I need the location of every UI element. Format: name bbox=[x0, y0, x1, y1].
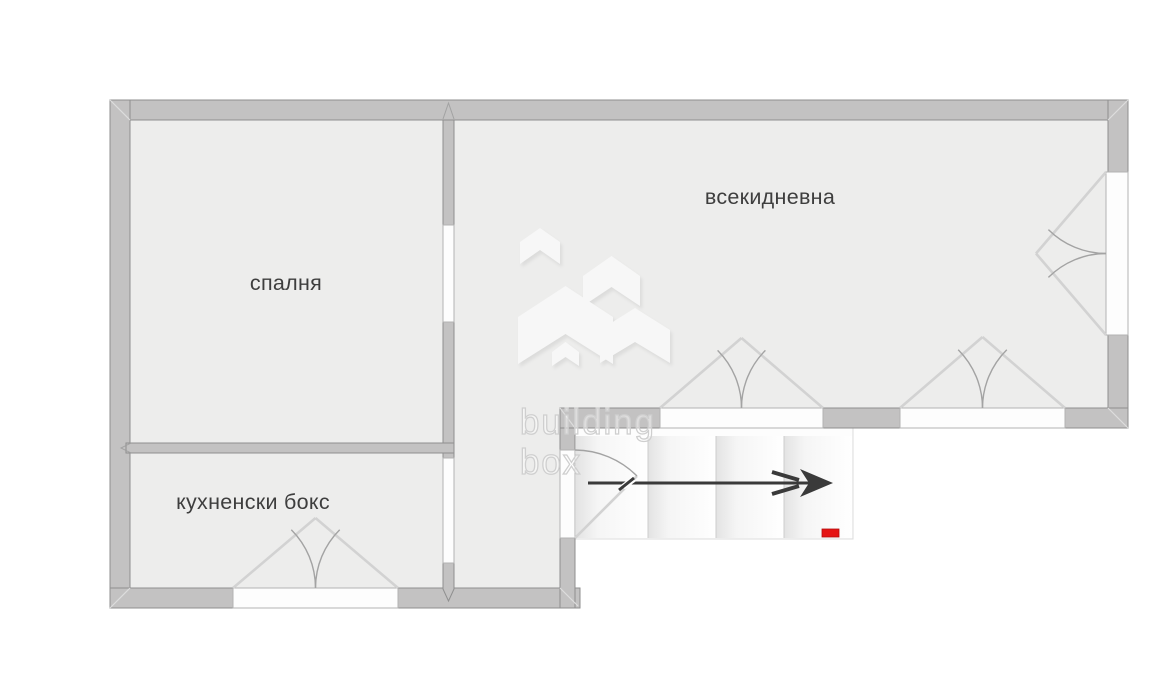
wall-interior-vertical-upper bbox=[443, 120, 454, 225]
floor-plan-drawing bbox=[0, 0, 1170, 697]
opening-kitchen-hallway bbox=[443, 458, 454, 563]
opening-hallway-stairs bbox=[560, 450, 575, 538]
living-room-label: всекидневна bbox=[640, 185, 900, 210]
wall-top bbox=[110, 100, 1128, 120]
wall-hallway-upper bbox=[560, 428, 575, 450]
wall-interior-vertical-middle bbox=[443, 322, 454, 458]
bedroom-label: спалня bbox=[156, 271, 416, 296]
kitchenette-label: кухненски бокс bbox=[123, 490, 383, 515]
opening-living-bottom-window bbox=[900, 408, 1065, 428]
opening-bedroom-living bbox=[443, 225, 454, 322]
wall-hallway-lower bbox=[560, 538, 575, 608]
entrance-marker bbox=[822, 529, 839, 537]
opening-right-french-door bbox=[1106, 172, 1128, 335]
wall-left bbox=[110, 100, 130, 608]
wall-room-divider bbox=[126, 443, 454, 453]
opening-living-bottom-door bbox=[660, 408, 823, 428]
floor-plan-canvas: спалня всекидневна кухненски бокс buildi… bbox=[0, 0, 1170, 697]
opening-kitchen-window bbox=[233, 588, 398, 608]
kitchenette-floor bbox=[130, 453, 443, 588]
